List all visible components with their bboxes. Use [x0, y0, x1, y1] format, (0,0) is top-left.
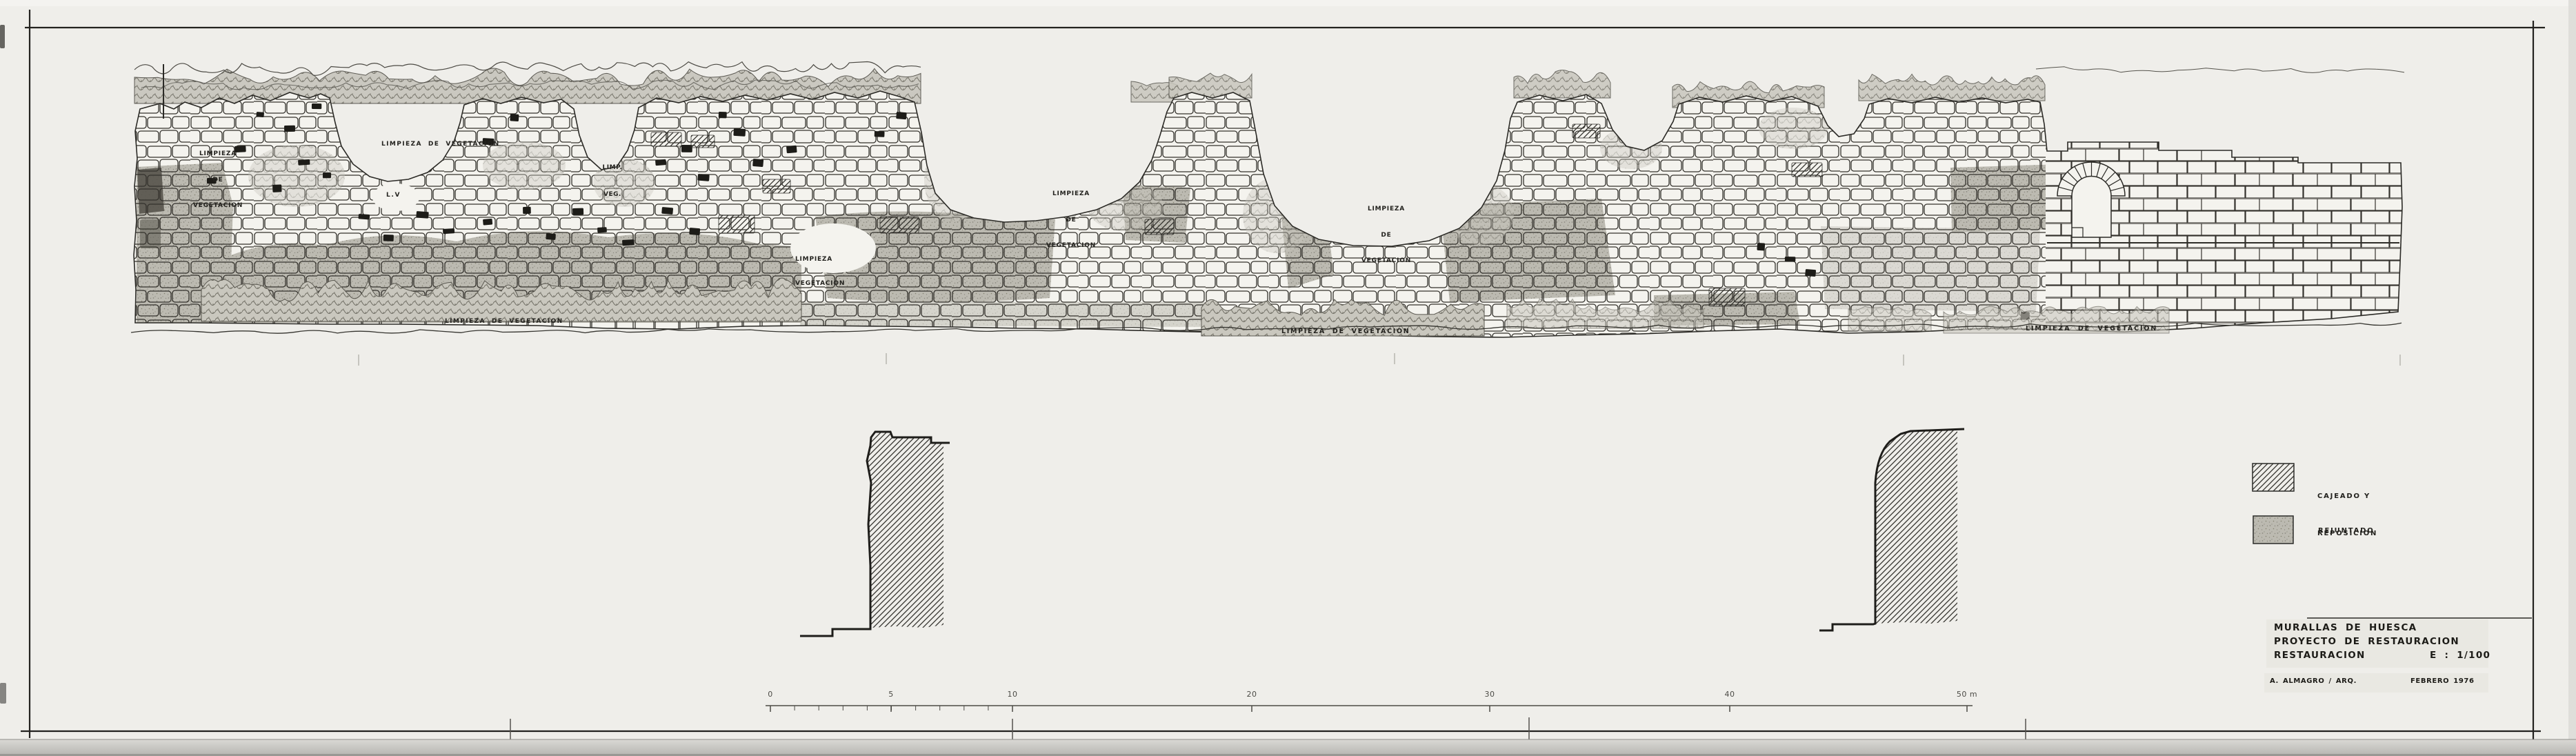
legend-swatch-stipple	[2253, 516, 2293, 544]
annotation-lv-abbrev: L.V	[386, 191, 401, 199]
scale-tick-label-50m: 50 m	[1957, 690, 1977, 699]
annotation-limpieza-top-left: LIMPIEZA DE VEGETACION	[193, 132, 243, 228]
annotation-limpieza-ground-center: LIMPIEZA DE VEGETACION	[1281, 328, 1410, 336]
author: A. ALMAGRO / ARQ.	[2270, 677, 2357, 685]
scale-tick-label-20: 20	[1247, 690, 1257, 699]
scale-tick-label-30: 30	[1485, 690, 1495, 699]
legend-swatch-hatch	[2253, 464, 2294, 491]
annotation-limpieza-mid-right: LIMPIEZA DE VEGETACION	[1361, 188, 1411, 283]
legend-item-cajeado: CAJEADO Y REPOSICION	[2317, 466, 2377, 565]
date: FEBRERO 1976	[2410, 677, 2475, 685]
drawing-scale: E : 1/100	[2430, 650, 2490, 661]
scale-tick-label-40: 40	[1725, 690, 1735, 699]
scan-smudge	[0, 683, 6, 704]
scale-tick-label-0: 0	[768, 690, 773, 699]
title-line-2: PROYECTO DE RESTAURACION	[2274, 636, 2459, 647]
scan-edge-bottom	[0, 739, 2576, 756]
scan-edge-right	[2568, 0, 2576, 756]
title-line-1: MURALLAS DE HUESCA	[2274, 622, 2417, 633]
annotation-limpieza-mid-left: LIMPIEZA VEGETACION	[795, 240, 845, 304]
annotation-limpieza-top-center: LIMPIEZA DE VEGETACION	[381, 140, 500, 148]
scale-tick-label-5: 5	[888, 690, 894, 699]
annotation-limpieza-ground-left: LIMPIEZA DE VEGETACION	[445, 317, 563, 326]
scale-tick-label-10: 10	[1008, 690, 1018, 699]
drawing-sheet: LIMPIEZA DE VEGETACION LIMPIEZA DE VEGET…	[0, 0, 2576, 756]
paper-background	[0, 0, 2576, 756]
annotation-limpieza-ground-right: LIMPIEZA DE VEGETACION	[2026, 325, 2157, 333]
scan-smudge	[0, 25, 5, 48]
wall-elevation-drawing	[0, 0, 2576, 756]
annotation-limpieza-mid-center: LIMPIEZA DE VEGETACION	[1046, 172, 1096, 268]
annotation-limp-veg-abbrev: LIMP. VEG.	[603, 146, 623, 217]
title-line-3: RESTAURACION	[2274, 650, 2366, 661]
legend-item-rejuntado: REJUNTADO	[2318, 525, 2375, 537]
